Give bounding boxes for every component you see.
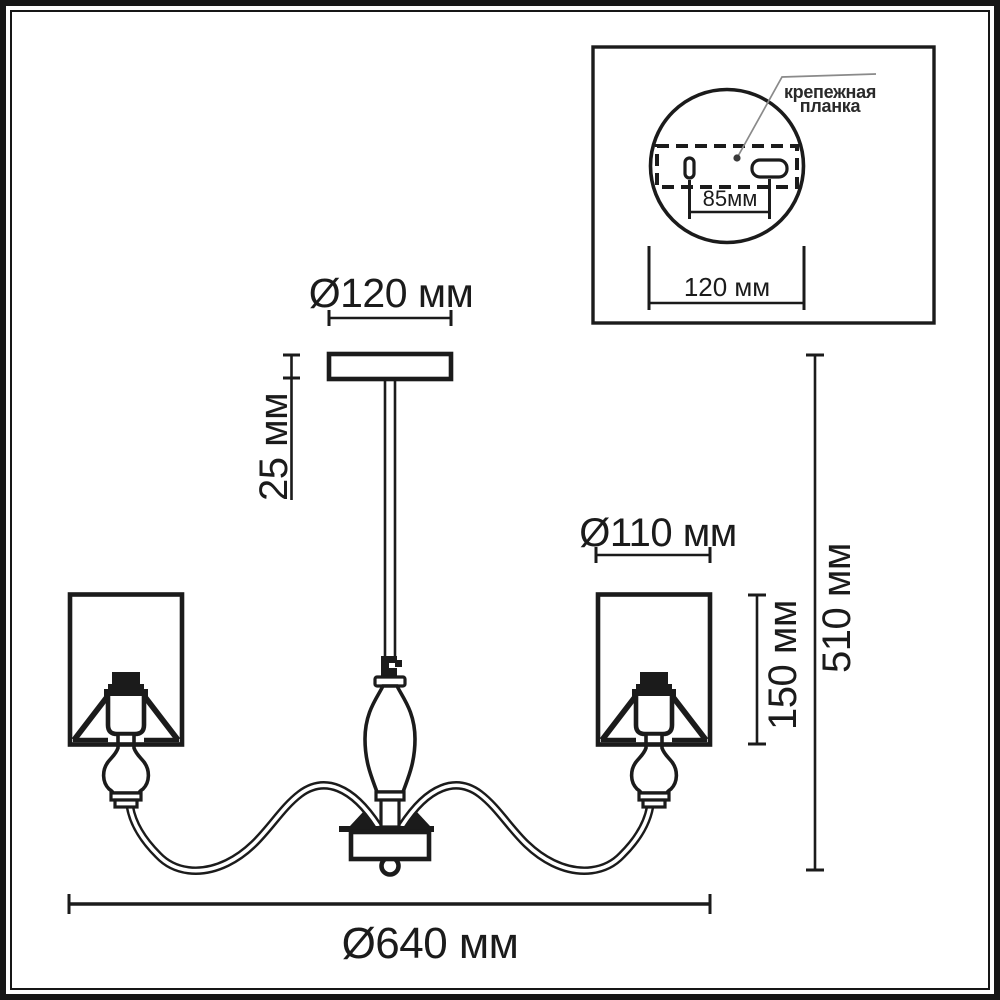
shade-diameter-text: Ø110 мм	[579, 511, 737, 555]
dim-shade-height: 150 мм	[748, 595, 805, 744]
center-hub	[351, 832, 429, 859]
fixture-diameter-text: Ø640 мм	[342, 919, 519, 968]
center-vase	[365, 686, 415, 792]
canopy-diameter-text: Ø120 мм	[309, 270, 474, 316]
chandelier-drawing	[70, 354, 710, 875]
left-lamp	[70, 595, 182, 808]
plate-diameter-text: 120 мм	[684, 272, 770, 302]
mounting-plate-label-line2: планка	[800, 96, 862, 116]
right-lamp	[598, 595, 710, 808]
leader-dot	[733, 154, 740, 161]
dim-canopy-diameter: Ø120 мм	[309, 270, 474, 326]
column-neck	[381, 800, 399, 827]
dim-shade-diameter: Ø110 мм	[579, 511, 737, 563]
dimension-annotations: Ø120 мм 25 мм Ø110 мм 150 мм	[69, 270, 859, 968]
ceiling-canopy	[329, 354, 451, 379]
drawing-page: крепежная планка 85мм 120 мм	[0, 0, 1000, 1000]
mounting-plate-inset: крепежная планка 85мм 120 мм	[593, 47, 934, 323]
chandelier-dimension-drawing: крепежная планка 85мм 120 мм	[0, 0, 1000, 1000]
total-height-text: 510 мм	[815, 543, 859, 673]
rod-clamp	[381, 656, 397, 677]
canopy-height-text: 25 мм	[252, 393, 296, 501]
screw-hole	[685, 158, 694, 178]
right-arm	[402, 785, 650, 870]
dim-canopy-height: 25 мм	[252, 355, 300, 501]
mounting-slot	[752, 160, 787, 177]
shade-height-text: 150 мм	[761, 600, 805, 730]
rod-clamp-nub	[395, 660, 402, 667]
holes-distance-text: 85мм	[703, 186, 758, 211]
dim-fixture-diameter: Ø640 мм	[69, 894, 710, 968]
dim-total-height: 510 мм	[806, 355, 859, 870]
